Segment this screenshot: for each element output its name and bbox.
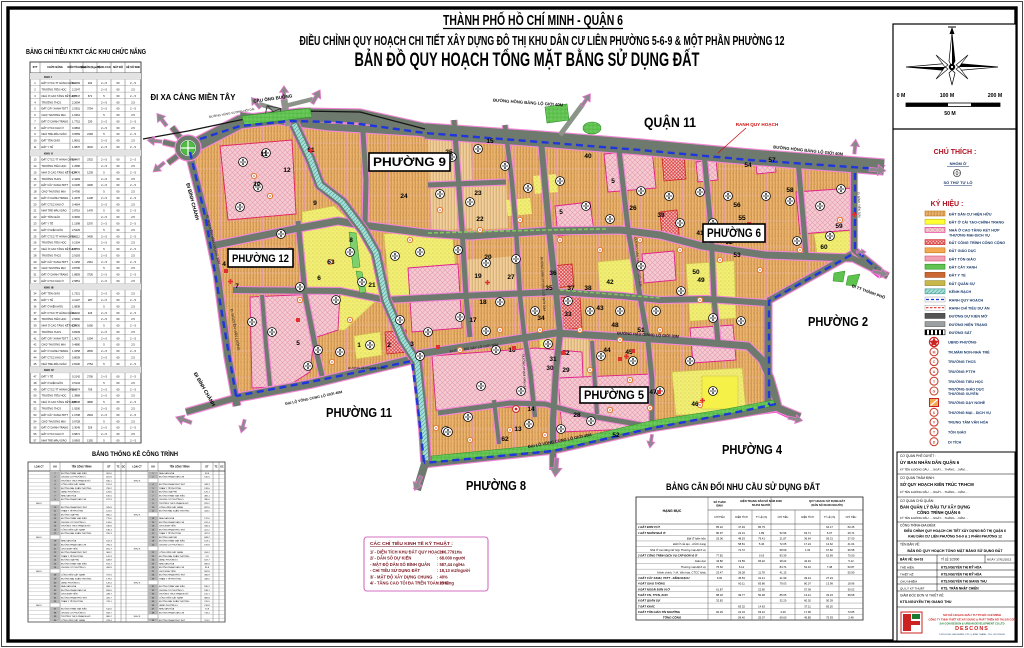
svg-text:734.4: 734.4 [204,612,210,614]
svg-text:100.7: 100.7 [204,594,210,596]
svg-text:ĐƯỜNG HIỆN TRẠNG: ĐƯỜNG HIỆN TRẠNG [949,322,987,327]
svg-text:897.6: 897.6 [204,507,210,509]
svg-text:33.23: 33.23 [826,593,833,597]
svg-text:0.6871: 0.6871 [72,432,80,436]
svg-text:ĐƯỜNG MAI XUÂN THƯỞNG: ĐƯỜNG MAI XUÂN THƯỞNG [159,600,190,603]
svg-text:22: 22 [476,216,484,223]
svg-text:ĐẤT GIÁO DỤC: ĐẤT GIÁO DỤC [949,248,976,253]
svg-text:KHU I: KHU I [44,75,52,79]
svg-text:66.22: 66.22 [758,559,765,563]
svg-text:0.8339: 0.8339 [72,330,80,334]
svg-text:536.3: 536.3 [106,529,112,531]
svg-text:2.5: 2.5 [131,266,135,270]
svg-text:124.5: 124.5 [106,511,112,513]
svg-text:ĐƯỜNG PHẠM VĂN CHÍ: ĐƯỜNG PHẠM VĂN CHÍ [159,566,184,569]
svg-text:2 + 5: 2 + 5 [101,349,107,353]
svg-text:UBND PHƯỜNG 6: UBND PHƯỜNG 6 [159,604,178,607]
svg-text:NHÀ VĂN HÓA: NHÀ VĂN HÓA [159,472,175,475]
svg-text:43.80: 43.80 [716,559,723,563]
svg-text:680.2: 680.2 [106,514,112,516]
svg-text:2.5: 2.5 [131,253,135,257]
svg-text:2 ~ 5: 2 ~ 5 [130,183,136,187]
svg-text:59: 59 [835,223,843,230]
svg-text:NHÀ VĂN HÓA: NHÀ VĂN HÓA [159,562,175,565]
svg-text:M: M [933,350,936,354]
svg-text:2.5: 2.5 [131,330,135,334]
svg-text:CHỢ-THƯƠNG MẠI: CHỢ-THƯƠNG MẠI [42,343,66,347]
svg-text:858.1: 858.1 [106,586,112,588]
svg-text:886.8: 886.8 [204,597,210,599]
svg-text:ĐẤT Ở CẢI TẠO-CHỈNH TRANG: ĐẤT Ở CẢI TẠO-CHỈNH TRANG [949,220,1004,225]
svg-text:ĐƯỜNG GIA PHÚ: ĐƯỜNG GIA PHÚ [61,559,80,562]
svg-text:2.5: 2.5 [131,279,135,283]
svg-text:826.6: 826.6 [106,590,112,592]
svg-text:2 ~ 5: 2 ~ 5 [130,387,136,391]
svg-text:2 ~ 5: 2 ~ 5 [130,119,136,123]
svg-text:1239: 1239 [87,170,93,174]
svg-text:TRƯỜNG TIỂU HỌC: TRƯỜNG TIỂU HỌC [948,379,984,384]
svg-text:ỦY BAN NHÂN DÂN QUẬN 6: ỦY BAN NHÂN DÂN QUẬN 6 [900,460,960,465]
svg-text:646.1: 646.1 [106,480,112,482]
svg-text:1392: 1392 [87,438,93,442]
svg-text:346.3: 346.3 [204,526,210,528]
svg-text:1.9071: 1.9071 [72,336,80,340]
svg-text:33: 33 [564,311,572,318]
svg-text:20: 20 [484,254,492,261]
svg-text:670.5: 670.5 [106,495,112,497]
svg-text:2.5995: 2.5995 [72,324,80,328]
svg-text:KTS.NGUYỄN THỊ GIANG THU: KTS.NGUYỄN THỊ GIANG THU [941,578,987,583]
svg-text:1.3783: 1.3783 [72,247,80,251]
svg-text:3890: 3890 [87,400,93,404]
svg-text:2.5: 2.5 [131,228,135,232]
svg-text:449.3: 449.3 [204,484,210,486]
svg-text:28.22: 28.22 [780,559,787,563]
svg-text:22.60: 22.60 [758,587,765,591]
svg-text:0.0195: 0.0195 [72,183,80,187]
svg-text:525.2: 525.2 [204,503,210,505]
svg-text:2 + 5: 2 + 5 [101,279,107,283]
svg-text:2 + 5: 2 + 5 [101,394,107,398]
svg-text:CHUNG CƯ PHƯỜNG 5: CHUNG CƯ PHƯỜNG 5 [61,611,86,614]
svg-text:THÀNH PHỐ HỒ CHÍ MINH - QUẬN 6: THÀNH PHỐ HỒ CHÍ MINH - QUẬN 6 [443,11,623,29]
svg-text:Nhà Ở cao tầng kết hợp Thương: Nhà Ở cao tầng kết hợp Thương mại-Dịch v… [650,547,706,552]
svg-text:42.91: 42.91 [804,559,811,563]
svg-text:ĐƯỜNG TRẦN VĂN KIỂU: ĐƯỜNG TRẦN VĂN KIỂU [159,540,185,543]
svg-text:3405: 3405 [87,234,93,238]
svg-text:2 ~ 5: 2 ~ 5 [130,336,136,340]
svg-text:DIỆN TÍCH: DIỆN TÍCH [735,516,748,519]
svg-text:2 ~ 5: 2 ~ 5 [130,413,136,417]
svg-text:45.53: 45.53 [738,576,745,580]
svg-text:37.11: 37.11 [804,604,811,608]
svg-text:2169: 2169 [87,132,93,136]
svg-text:56: 56 [733,202,741,209]
svg-text:2 + 5: 2 + 5 [101,126,107,130]
svg-text:ĐẤT CÂY XANH: ĐẤT CÂY XANH [949,265,977,270]
svg-text:1.1398: 1.1398 [72,222,80,226]
svg-text:CHỈ TIÊU: CHỈ TIÊU [714,516,725,519]
svg-text:9.00: 9.00 [717,576,723,580]
svg-text:2.5: 2.5 [131,419,135,423]
svg-text:510.6: 510.6 [106,609,112,611]
svg-text:KHU II: KHU II [134,582,141,584]
svg-text:KÝ TÊN & ĐÓNG DẤU .....NGÀY...: KÝ TÊN & ĐÓNG DẤU .....NGÀY.....THÁNG...… [900,515,969,520]
svg-text:CƠ QUAN PHÊ DUYỆT :: CƠ QUAN PHÊ DUYỆT : [900,453,936,458]
svg-text:100 M: 100 M [940,93,954,99]
svg-text:0.4664: 0.4664 [72,202,80,206]
svg-text:KTS.NGUYỄN THỊ GIANG THU: KTS.NGUYỄN THỊ GIANG THU [900,599,952,604]
svg-text:60.11: 60.11 [738,582,745,586]
svg-text:59.31: 59.31 [826,537,833,541]
svg-text:NHÀ Ở CAO TẦNG KẾT HỢP: NHÀ Ở CAO TẦNG KẾT HỢP [949,228,1000,233]
svg-text:145.4: 145.4 [106,582,112,584]
svg-text:$: $ [933,411,935,415]
svg-text:CHỢ-THƯƠNG MẠI: CHỢ-THƯƠNG MẠI [42,190,66,194]
svg-text:52.10: 52.10 [804,565,811,569]
svg-text:THƯƠNG MẠI - DỊCH VỤ: THƯƠNG MẠI - DỊCH VỤ [948,411,991,415]
svg-text:KHU I: KHU I [36,503,42,505]
svg-text:75.93: 75.93 [826,616,833,620]
svg-text:: 68.000 người: : 68.000 người [437,556,465,561]
svg-text:ĐI XA CẢNG MIỀN TÂY: ĐI XA CẢNG MIỀN TÂY [151,91,236,102]
svg-text:29.74: 29.74 [848,531,855,535]
svg-text:CÔNG TRÌNH QUẬN 6: CÔNG TRÌNH QUẬN 6 [917,510,961,515]
svg-text:50: 50 [692,269,700,276]
svg-text:PHƯỜNG 9: PHƯỜNG 9 [373,156,446,169]
svg-text:ĐƯỜNG PHẠM VĂN CHÍ: ĐƯỜNG PHẠM VĂN CHÍ [159,521,184,524]
svg-text:2 ~ 5: 2 ~ 5 [130,362,136,366]
svg-text:2 ~ 5: 2 ~ 5 [130,375,136,379]
svg-text:CÔNG VIÊN CÂY XANH: CÔNG VIÊN CÂY XANH [159,506,183,509]
svg-text:32.20: 32.20 [780,599,787,603]
svg-text:73.85: 73.85 [848,610,855,614]
svg-text:CHUNG CƯ PHƯỜNG 5: CHUNG CƯ PHƯỜNG 5 [61,476,86,479]
svg-text:ĐƯỜNG PHẠM VĂN CHÍ: ĐƯỜNG PHẠM VĂN CHÍ [61,544,86,547]
svg-text:CHỢ-THƯƠNG MẠI: CHỢ-THƯƠNG MẠI [42,419,66,423]
svg-text:14: 14 [527,406,535,413]
svg-text:17.96: 17.96 [804,610,811,614]
svg-text:17.24: 17.24 [804,542,811,546]
svg-text:KÊNH RẠCH: KÊNH RẠCH [949,289,971,294]
svg-text:1.0658: 1.0658 [72,349,80,353]
svg-text:58: 58 [786,187,794,194]
svg-text:31: 31 [549,356,557,363]
svg-text:0.6559: 0.6559 [72,132,80,136]
svg-text:1.1356: 1.1356 [72,260,80,264]
svg-text:5: 5 [559,209,563,216]
svg-text:PHƯỜNG 5: PHƯỜNG 5 [584,389,645,402]
svg-text:ĐƯỜNG PHẠM PHÚ THỨ: ĐƯỜNG PHẠM PHÚ THỨ [159,619,185,622]
svg-text:NHÀ VĂN HÓA: NHÀ VĂN HÓA [159,517,175,520]
svg-text:2 + 5: 2 + 5 [101,177,107,181]
svg-text:27.23: 27.23 [826,576,833,580]
svg-text:53: 53 [733,252,741,259]
svg-text:2 + 5: 2 + 5 [101,375,107,379]
svg-text:2 + 5: 2 + 5 [101,241,107,245]
svg-text:48: 48 [611,322,619,329]
svg-text:2.5: 2.5 [131,381,135,385]
svg-text:2.8100: 2.8100 [72,362,80,366]
svg-text:2 ~ 5: 2 ~ 5 [130,94,136,98]
svg-text:479.4: 479.4 [106,620,112,622]
svg-text:19.59: 19.59 [738,559,745,563]
svg-text:15: 15 [486,138,494,145]
svg-text:2 + 5: 2 + 5 [101,253,107,257]
svg-text:KÝ TÊN & ĐÓNG DẤU .....NGÀY...: KÝ TÊN & ĐÓNG DẤU .....NGÀY.....THÁNG...… [900,489,969,494]
svg-text:2.4283: 2.4283 [72,177,80,181]
svg-text:NHÀ VĂN HÓA: NHÀ VĂN HÓA [159,608,175,611]
svg-text:18.96: 18.96 [848,582,855,586]
svg-text:80.07: 80.07 [804,582,811,586]
svg-text:649.9: 649.9 [106,560,112,562]
svg-text:G: G [933,390,936,394]
svg-text:2 ĐẤT CÔNG TRÌNH DỊCH VỤ CẤP Đ: 2 ĐẤT CÔNG TRÌNH DỊCH VỤ CẤP ĐƠN VỊ Ở [637,552,698,557]
svg-text:72.05: 72.05 [780,542,787,546]
svg-text:CHỢ BÌNH TIÊN: CHỢ BÌNH TIÊN [159,570,176,573]
svg-text:ĐƯỜNG GIA PHÚ: ĐƯỜNG GIA PHÚ [159,536,178,539]
svg-text:CÔNG VIÊN CÂY XANH: CÔNG VIÊN CÂY XANH [159,596,183,599]
svg-text:2 ~ 5: 2 ~ 5 [130,107,136,111]
svg-text:336.5: 336.5 [204,578,210,580]
svg-text:485.1: 485.1 [204,495,210,497]
svg-text:1.7715: 1.7715 [72,119,80,123]
svg-text:KHU II: KHU II [44,151,53,155]
svg-text:83.39: 83.39 [780,553,787,557]
svg-text:KHU I: KHU I [36,571,42,573]
svg-text:2.5: 2.5 [131,343,135,347]
svg-text:1.3476: 1.3476 [72,170,80,174]
svg-text:2 ~ 5: 2 ~ 5 [130,209,136,213]
svg-text:ĐƯỜNG TRẦN VĂN KIỂU: ĐƯỜNG TRẦN VĂN KIỂU [61,472,87,475]
svg-text:59.40: 59.40 [738,616,745,620]
svg-text:KÝ HIỆU :: KÝ HIỆU : [931,199,964,208]
svg-text:8: 8 [349,237,353,244]
svg-text:STT: STT [33,66,38,69]
svg-text:2845: 2845 [87,349,93,353]
svg-text:CHÚ THÍCH :: CHÚ THÍCH : [934,147,977,156]
svg-text:0 M: 0 M [897,93,906,99]
svg-text:36: 36 [549,270,557,277]
svg-text:1.7321: 1.7321 [72,292,80,296]
svg-text:RANH QUY HOẠCH: RANH QUY HOẠCH [736,122,779,127]
svg-text:880.2: 880.2 [106,616,112,618]
svg-text:2 + 5: 2 + 5 [101,222,107,226]
svg-text:2 ~ 5: 2 ~ 5 [130,400,136,404]
svg-text:LOẠI CT: LOẠI CT [34,466,44,469]
svg-text:2.5: 2.5 [131,292,135,296]
svg-text:329: 329 [88,426,93,430]
svg-text:37.00: 37.00 [848,537,855,541]
svg-text:2.48: 2.48 [848,616,854,620]
svg-text:2 ~ 5: 2 ~ 5 [130,273,136,277]
svg-text:25.07: 25.07 [758,616,765,620]
svg-text:2 + 5: 2 + 5 [101,407,107,411]
svg-text:TRƯỜNG THCS PHẠM Đ.HỔ: TRƯỜNG THCS PHẠM Đ.HỔ [159,502,189,505]
svg-text:2 ~ 5: 2 ~ 5 [130,170,136,174]
svg-text:2 + 5: 2 + 5 [101,107,107,111]
svg-text:2 ~ 5: 2 ~ 5 [130,260,136,264]
svg-text:796.2: 796.2 [106,488,112,490]
svg-text:775.0: 775.0 [106,518,112,520]
svg-text:: 106,7791Ha: : 106,7791Ha [437,550,463,555]
svg-text:536.8: 536.8 [106,526,112,528]
svg-text:0.7347: 0.7347 [72,94,80,98]
svg-text:DESCONS: DESCONS [955,626,989,632]
svg-text:PHƯỜNG 8: PHƯỜNG 8 [466,478,526,493]
svg-text:215.5: 215.5 [204,601,210,603]
svg-text:NHÀ VĂN HÓA: NHÀ VĂN HÓA [61,540,77,543]
svg-text:2 + 5: 2 + 5 [101,139,107,143]
svg-text:NHÀ VĂN HÓA: NHÀ VĂN HÓA [61,585,77,588]
svg-text:2.5: 2.5 [131,355,135,359]
svg-text:128.6: 128.6 [106,492,112,494]
svg-text:KHU I: KHU I [36,537,42,539]
svg-text:325.8: 325.8 [106,507,112,509]
svg-text:THIẾT KẾ: THIẾT KẾ [900,571,913,576]
svg-text:17: 17 [469,317,477,324]
svg-text:6.07: 6.07 [827,531,833,535]
svg-text:PHƯỜNG 6: PHƯỜNG 6 [707,227,761,240]
svg-text:830.2: 830.2 [204,586,210,588]
svg-text:Giáo dục: Giáo dục [695,559,707,563]
svg-text:ĐI BÌNH CHÁNH: ĐI BÌNH CHÁNH [192,371,218,408]
svg-text:ĐƯỜNG MAI XUÂN THƯỞNG: ĐƯỜNG MAI XUÂN THƯỞNG [61,532,92,535]
svg-text:BẢN ĐỒ QUY HOẠCH TỔNG MẶT BẰNG: BẢN ĐỒ QUY HOẠCH TỔNG MẶT BẰNG SỬ DỤNG Đ… [355,47,700,71]
svg-text:9: 9 [313,200,317,207]
svg-text:DI TÍCH: DI TÍCH [948,439,962,444]
svg-text:CHỢ-THƯƠNG MẠI: CHỢ-THƯƠNG MẠI [42,113,66,117]
svg-text:SỐ THỨ TỰ LÔ: SỐ THỨ TỰ LÔ [943,180,972,185]
svg-text:47: 47 [649,389,657,396]
svg-text:2.5: 2.5 [131,190,135,194]
svg-text:2 + 5: 2 + 5 [101,234,107,238]
svg-text:612.4: 612.4 [204,522,210,524]
svg-text:63.12: 63.12 [758,610,765,614]
svg-text:TRƯỜNG THCS PHẠM Đ.HỔ: TRƯỜNG THCS PHẠM Đ.HỔ [61,525,91,528]
svg-text:ĐỊNH: ĐỊNH [716,504,722,508]
svg-text:1.9838: 1.9838 [72,304,80,308]
svg-text:ĐƯỜNG TRẦN VĂN KIỂU: ĐƯỜNG TRẦN VĂN KIỂU [159,585,185,588]
svg-text:306.2: 306.2 [106,552,112,554]
svg-text:19: 19 [474,273,482,280]
svg-text:2 + 5: 2 + 5 [101,215,107,219]
svg-text:12: 12 [283,167,291,174]
svg-text:KH: KH [53,467,57,469]
svg-text:TỔNG CỘNG: TỔNG CỘNG [663,615,682,620]
svg-text:QU.LÝ KỸ THUẬT: QU.LÝ KỸ THUẬT [900,585,925,590]
svg-text:TÔN GIÁO: TÔN GIÁO [948,430,966,435]
svg-text:1 ĐẤT ĐƠN VỊ Ở: 1 ĐẤT ĐƠN VỊ Ở [638,524,660,529]
svg-text:46: 46 [691,401,699,408]
svg-text:KHU I: KHU I [36,605,42,607]
svg-text:21: 21 [368,282,376,289]
svg-text:ĐƯỜNG MAI XUÂN THƯỞNG: ĐƯỜNG MAI XUÂN THƯỞNG [159,510,190,513]
svg-text:GC: GC [220,467,224,469]
svg-text:60.29: 60.29 [716,610,723,614]
svg-text:2361: 2361 [87,260,93,264]
svg-text:13.41: 13.41 [804,593,811,597]
svg-text:142.3: 142.3 [106,556,112,558]
svg-text:22.31: 22.31 [738,531,745,535]
svg-text:1.33: 1.33 [805,548,811,552]
svg-text:TC: TC [214,467,217,469]
svg-text:23.47: 23.47 [716,570,723,574]
svg-text:- MẬT ĐỘ DÂN SỐ BÌNH QUÂN: - MẬT ĐỘ DÂN SỐ BÌNH QUÂN [370,562,430,567]
svg-text:CHUNG CƯ PHƯỜNG 5: CHUNG CƯ PHƯỜNG 5 [61,521,86,524]
svg-text:TRẠM Y TẾ PHƯỜNG: TRẠM Y TẾ PHƯỜNG [61,510,84,513]
svg-text:43: 43 [596,305,604,312]
svg-text:1.3868: 1.3868 [72,394,80,398]
svg-text:CHUNG CƯ PHƯỜNG 5: CHUNG CƯ PHƯỜNG 5 [61,566,86,569]
svg-text:THƯỜNG XUYÊN: THƯỜNG XUYÊN [948,391,979,396]
svg-text:216.8: 216.8 [204,605,210,607]
svg-text:57.09: 57.09 [804,587,811,591]
svg-text:456.9: 456.9 [106,567,112,569]
svg-text:ĐẤT DÂN CƯ HIỆN HỮU: ĐẤT DÂN CƯ HIỆN HỮU [949,211,992,216]
svg-text:1.9200: 1.9200 [72,407,80,411]
svg-text:ĐƯỜNG TRẦN VĂN KIỂU: ĐƯỜNG TRẦN VĂN KIỂU [159,494,185,497]
svg-text:ĐẤT CÔNG TRÌNH CÔNG CỘNG: ĐẤT CÔNG TRÌNH CÔNG CỘNG [949,240,1005,245]
svg-text:29: 29 [562,367,570,374]
svg-text:2.5: 2.5 [131,177,135,181]
svg-text:ĐƯỜNG PHẠM PHÚ THỨ: ĐƯỜNG PHẠM PHÚ THỨ [61,551,87,554]
svg-text:6 ĐẤT QUÂN SỰ: 6 ĐẤT QUÂN SỰ [638,598,661,603]
svg-text:230: 230 [88,119,93,123]
svg-text:ĐƯỜNG MAI XUÂN THƯỞNG: ĐƯỜNG MAI XUÂN THƯỞNG [61,487,92,490]
svg-text:456.9: 456.9 [204,575,210,577]
svg-text:CHỦ NHIỆM: CHỦ NHIỆM [900,578,918,583]
svg-text:113.2: 113.2 [204,620,210,622]
svg-text:CHỈ TIÊU: CHỈ TIÊU [846,516,857,519]
svg-text:42: 42 [606,279,614,286]
svg-text:ĐIỀU CHỈNH QUY HOẠCH CHI TIẾT: ĐIỀU CHỈNH QUY HOẠCH CHI TIẾT XÂY DỰNG Đ… [904,528,1006,533]
svg-text:691.7: 691.7 [106,548,112,550]
svg-text:TC: TC [116,467,119,469]
svg-text:3754: 3754 [87,107,93,111]
svg-text:1.6837: 1.6837 [72,145,80,149]
svg-text:2 ~ 5: 2 ~ 5 [130,132,136,136]
svg-text:326.7: 326.7 [106,597,112,599]
svg-text:2 + 5: 2 + 5 [101,164,107,168]
svg-text:Đất Ở cải tạo - chỉnh trang: Đất Ở cải tạo - chỉnh trang [673,541,706,546]
svg-text:36.64: 36.64 [804,537,811,541]
svg-text:ĐƯỜNG PHẠM PHÚ THỨ: ĐƯỜNG PHẠM PHÚ THỨ [159,574,185,577]
svg-text:SAI GON DESIGN & URBAN DEVELOP: SAI GON DESIGN & URBAN DEVELOPMENT CO.LT… [940,622,1005,626]
svg-text:3: 3 [410,341,414,348]
svg-text:: 18,13 m2/người: : 18,13 m2/người [437,568,470,573]
svg-text:2.5: 2.5 [131,139,135,143]
svg-text:539.1: 539.1 [204,590,210,592]
svg-text:BAN QUẢN LÝ ĐẦU TƯ XÂY DỰNG: BAN QUẢN LÝ ĐẦU TƯ XÂY DỰNG [900,505,970,510]
svg-text:143/14 UNG VĂN KHIÊM, P.25, Q.: 143/14 UNG VĂN KHIÊM, P.25, Q.BÌNH THẠNH… [939,633,1006,636]
svg-text:44: 44 [603,347,611,354]
svg-text:5.12: 5.12 [848,559,854,563]
svg-text:11.78: 11.78 [758,570,765,574]
svg-text:874.7: 874.7 [106,563,112,565]
svg-text:62.69: 62.69 [826,553,833,557]
svg-text:ĐƯỜNG DỰ KIẾN MỞ: ĐƯỜNG DỰ KIẾN MỞ [949,314,988,319]
svg-text:85.05: 85.05 [780,593,787,597]
svg-text:ĐẤT QUÂN SỰ: ĐẤT QUÂN SỰ [949,281,976,286]
svg-text:0.4880: 0.4880 [72,343,80,347]
svg-text:226.3: 226.3 [106,533,112,535]
svg-text:2 ~ 5: 2 ~ 5 [130,247,136,251]
svg-text:BẢNG THỐNG KÊ CÔNG TRÌNH: BẢNG THỐNG KÊ CÔNG TRÌNH [92,448,178,458]
svg-text:BẢN VẼ: GH 03: BẢN VẼ: GH 03 [900,557,923,562]
svg-text:2.9193: 2.9193 [72,253,80,257]
svg-text:TÊN CÔNG TRÌNH: TÊN CÔNG TRÌNH [72,466,92,469]
